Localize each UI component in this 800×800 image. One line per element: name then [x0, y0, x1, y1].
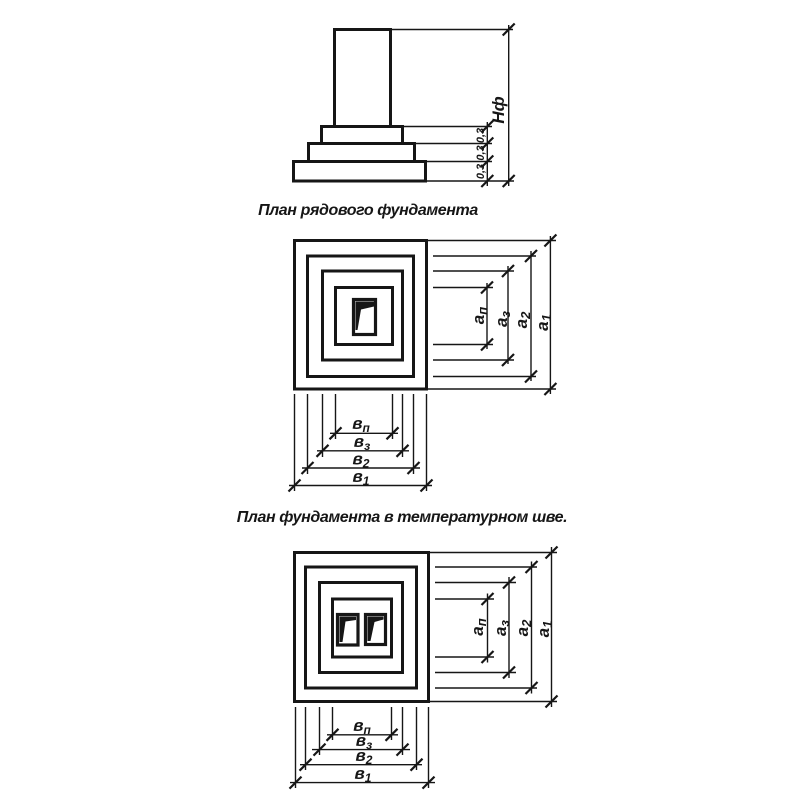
svg-text:а1: а1: [534, 621, 555, 638]
svg-text:ап: ап: [468, 618, 489, 635]
svg-text:а2: а2: [512, 311, 533, 328]
svg-text:а2: а2: [513, 619, 534, 636]
svg-text:План рядового фундамента: План рядового фундамента: [258, 202, 478, 219]
svg-text:а1: а1: [533, 314, 554, 331]
svg-text:0,3: 0,3: [475, 145, 487, 160]
svg-text:в1: в1: [355, 764, 372, 785]
svg-text:ап: ап: [469, 307, 490, 324]
svg-text:0,3: 0,3: [475, 128, 487, 143]
svg-text:Нф: Нф: [489, 96, 508, 123]
svg-text:0,3: 0,3: [475, 164, 487, 179]
svg-text:План фундамента в температурно: План фундамента в температурном шве.: [237, 509, 567, 526]
svg-text:аз: аз: [491, 620, 512, 636]
svg-text:аз: аз: [492, 311, 513, 327]
